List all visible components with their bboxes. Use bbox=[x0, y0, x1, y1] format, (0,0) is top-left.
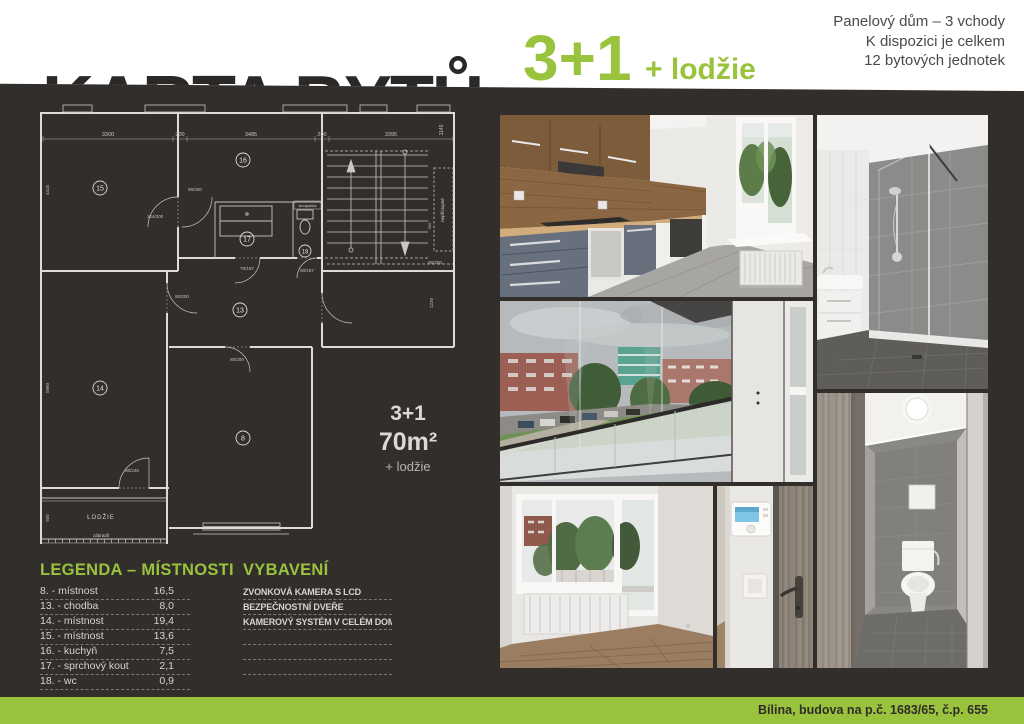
apartment-card: KARTA BYTŮ 3+1 + lodžie Panelový dům – 3… bbox=[0, 0, 1024, 724]
header-band: KARTA BYTŮ 3+1 + lodžie Panelový dům – 3… bbox=[0, 0, 1024, 91]
equipment-row: ZVONKOVÁ KAMERA S LCD bbox=[243, 585, 392, 600]
legend-label: 14. - místnost bbox=[40, 615, 104, 627]
dim-text: 3395 bbox=[385, 132, 397, 138]
dim-text: 5960 bbox=[45, 382, 50, 393]
footer-address: Bílina, budova na p.č. 1683/65, č.p. 655 bbox=[758, 697, 988, 724]
room-number-17: 17 bbox=[243, 237, 251, 244]
legend-row: 15. - místnost13,6 bbox=[40, 630, 190, 645]
equipment-section: VYBAVENÍ ZVONKOVÁ KAMERA S LCD BEZPEČNOS… bbox=[243, 562, 392, 675]
room-number-14: 14 bbox=[96, 386, 104, 393]
building-info: Panelový dům – 3 vchody K dispozici je c… bbox=[833, 12, 1005, 71]
door-illustration bbox=[717, 486, 813, 668]
stair-note-label: nepřístupné bbox=[440, 198, 445, 222]
legend-section: LEGENDA – MÍSTNOSTI 8. - místnost16,5 13… bbox=[40, 562, 190, 690]
legend-label: 15. - místnost bbox=[40, 630, 104, 642]
room-number-8: 8 bbox=[241, 436, 245, 443]
door-dim: 80/200 bbox=[428, 260, 442, 265]
legend-label: 16. - kuchyň bbox=[40, 645, 97, 657]
plan-room-number-texts: 15 16 17 18 13 14 8 bbox=[96, 158, 309, 443]
door-dim: 124/200 bbox=[147, 214, 164, 219]
door-dim: 60/197 bbox=[300, 268, 314, 273]
door-dim: 80/200 bbox=[175, 294, 189, 299]
photo-shower bbox=[817, 115, 988, 389]
plan-walls bbox=[40, 113, 455, 544]
loggia-label: LODŽIE bbox=[87, 513, 115, 521]
photo-balcony-view bbox=[500, 301, 813, 482]
legend-label: 17. - sprchový kout bbox=[40, 660, 129, 672]
dim-text: 1145 bbox=[439, 124, 445, 135]
room-number-15: 15 bbox=[96, 186, 104, 193]
plan-stairs bbox=[325, 150, 453, 264]
riser-label: sloupačka bbox=[298, 203, 317, 208]
legend-row: 8. - místnost16,5 bbox=[40, 585, 190, 600]
layout-label: 3+1 bbox=[523, 26, 632, 90]
door-dim: 80/200 bbox=[230, 357, 244, 362]
dim-text: 3485 bbox=[245, 132, 257, 138]
dim-text: 4415 bbox=[45, 184, 50, 195]
railing-label: zábradlí bbox=[93, 533, 110, 538]
summary-layout: 3+1 bbox=[390, 402, 426, 425]
equipment-row: BEZPEČNOSTNÍ DVEŘE bbox=[243, 600, 392, 615]
dim-text: 1220 bbox=[429, 297, 434, 308]
footer-bar: Bílina, budova na p.č. 1683/65, č.p. 655 bbox=[0, 697, 1024, 724]
equipment-row bbox=[243, 645, 392, 660]
building-info-line: K dispozici je celkem bbox=[833, 32, 1005, 52]
plan-labels: LODŽIE zábradlí sloupačka nepřístupné bbox=[87, 198, 445, 538]
dim-text: 200 bbox=[175, 132, 184, 138]
equipment-row bbox=[243, 660, 392, 675]
legend-row: 14. - místnost19,4 bbox=[40, 615, 190, 630]
legend-label: 18. - wc bbox=[40, 675, 77, 687]
legend-label: 13. - chodba bbox=[40, 600, 98, 612]
shower-illustration bbox=[817, 115, 988, 389]
photo-door-thermostat bbox=[717, 486, 813, 668]
room-number-16: 16 bbox=[239, 158, 247, 165]
legend-value: 2,1 bbox=[159, 660, 190, 672]
plan-doors bbox=[119, 197, 352, 488]
equipment-row: KAMEROVÝ SYSTÉM V CELÉM DOMĚ bbox=[243, 615, 392, 630]
legend-row: 13. - chodba8,0 bbox=[40, 600, 190, 615]
photo-toilet bbox=[817, 393, 988, 668]
door-dim: 80/245 bbox=[125, 468, 139, 473]
kitchen-illustration bbox=[500, 115, 813, 297]
door-dim: 70/197 bbox=[240, 266, 254, 271]
room-number-18: 18 bbox=[302, 250, 309, 256]
room-illustration bbox=[500, 486, 713, 668]
building-info-line: Panelový dům – 3 vchody bbox=[833, 12, 1005, 32]
photo-kitchen bbox=[500, 115, 813, 297]
building-info-line: 12 bytových jednotek bbox=[833, 51, 1005, 71]
balcony-illustration bbox=[500, 301, 813, 482]
dim-text: 920 bbox=[45, 514, 50, 522]
plan-summary: 3+1 70m² + lodžie bbox=[379, 402, 437, 474]
legend-title: LEGENDA – MÍSTNOSTI bbox=[40, 562, 190, 579]
legend-row: 18. - wc0,9 bbox=[40, 675, 190, 690]
equipment-row bbox=[243, 630, 392, 645]
plan-room-numbers bbox=[93, 153, 311, 445]
legend-value: 7,5 bbox=[159, 645, 190, 657]
door-dim: 80/200 bbox=[188, 187, 202, 192]
dim-text: 350 bbox=[427, 222, 432, 229]
summary-extra: + lodžie bbox=[385, 459, 430, 474]
dim-text: 200 bbox=[317, 132, 326, 138]
legend-value: 16,5 bbox=[154, 585, 190, 597]
floor-plan: 3300 200 3485 200 3395 1145 4415 5960 92… bbox=[35, 98, 465, 558]
photo-grid bbox=[500, 115, 988, 668]
legend-value: 13,6 bbox=[154, 630, 190, 642]
legend-row: 17. - sprchový kout2,1 bbox=[40, 660, 190, 675]
dim-text: 3300 bbox=[102, 132, 114, 138]
legend-value: 0,9 bbox=[159, 675, 190, 687]
layout-suffix-label: + lodžie bbox=[645, 55, 756, 85]
legend-row: 16. - kuchyň7,5 bbox=[40, 645, 190, 660]
summary-area: 70m² bbox=[379, 428, 437, 456]
equipment-title: VYBAVENÍ bbox=[243, 562, 392, 579]
legend-value: 8,0 bbox=[159, 600, 190, 612]
photo-room bbox=[500, 486, 713, 668]
legend-label: 8. - místnost bbox=[40, 585, 98, 597]
toilet-illustration bbox=[817, 393, 988, 668]
legend-value: 19,4 bbox=[154, 615, 190, 627]
room-number-13: 13 bbox=[236, 308, 244, 315]
